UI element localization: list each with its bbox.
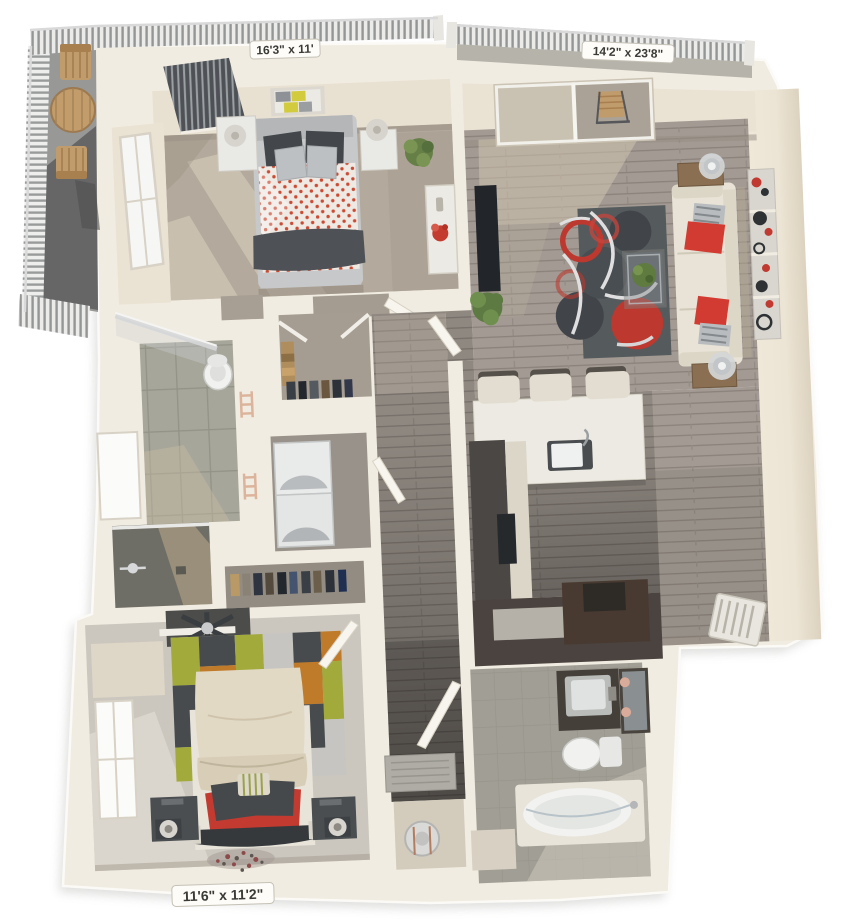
svg-text:16'3" x 11': 16'3" x 11' xyxy=(256,42,314,58)
svg-text:11'6" x 11'2": 11'6" x 11'2" xyxy=(182,886,263,905)
